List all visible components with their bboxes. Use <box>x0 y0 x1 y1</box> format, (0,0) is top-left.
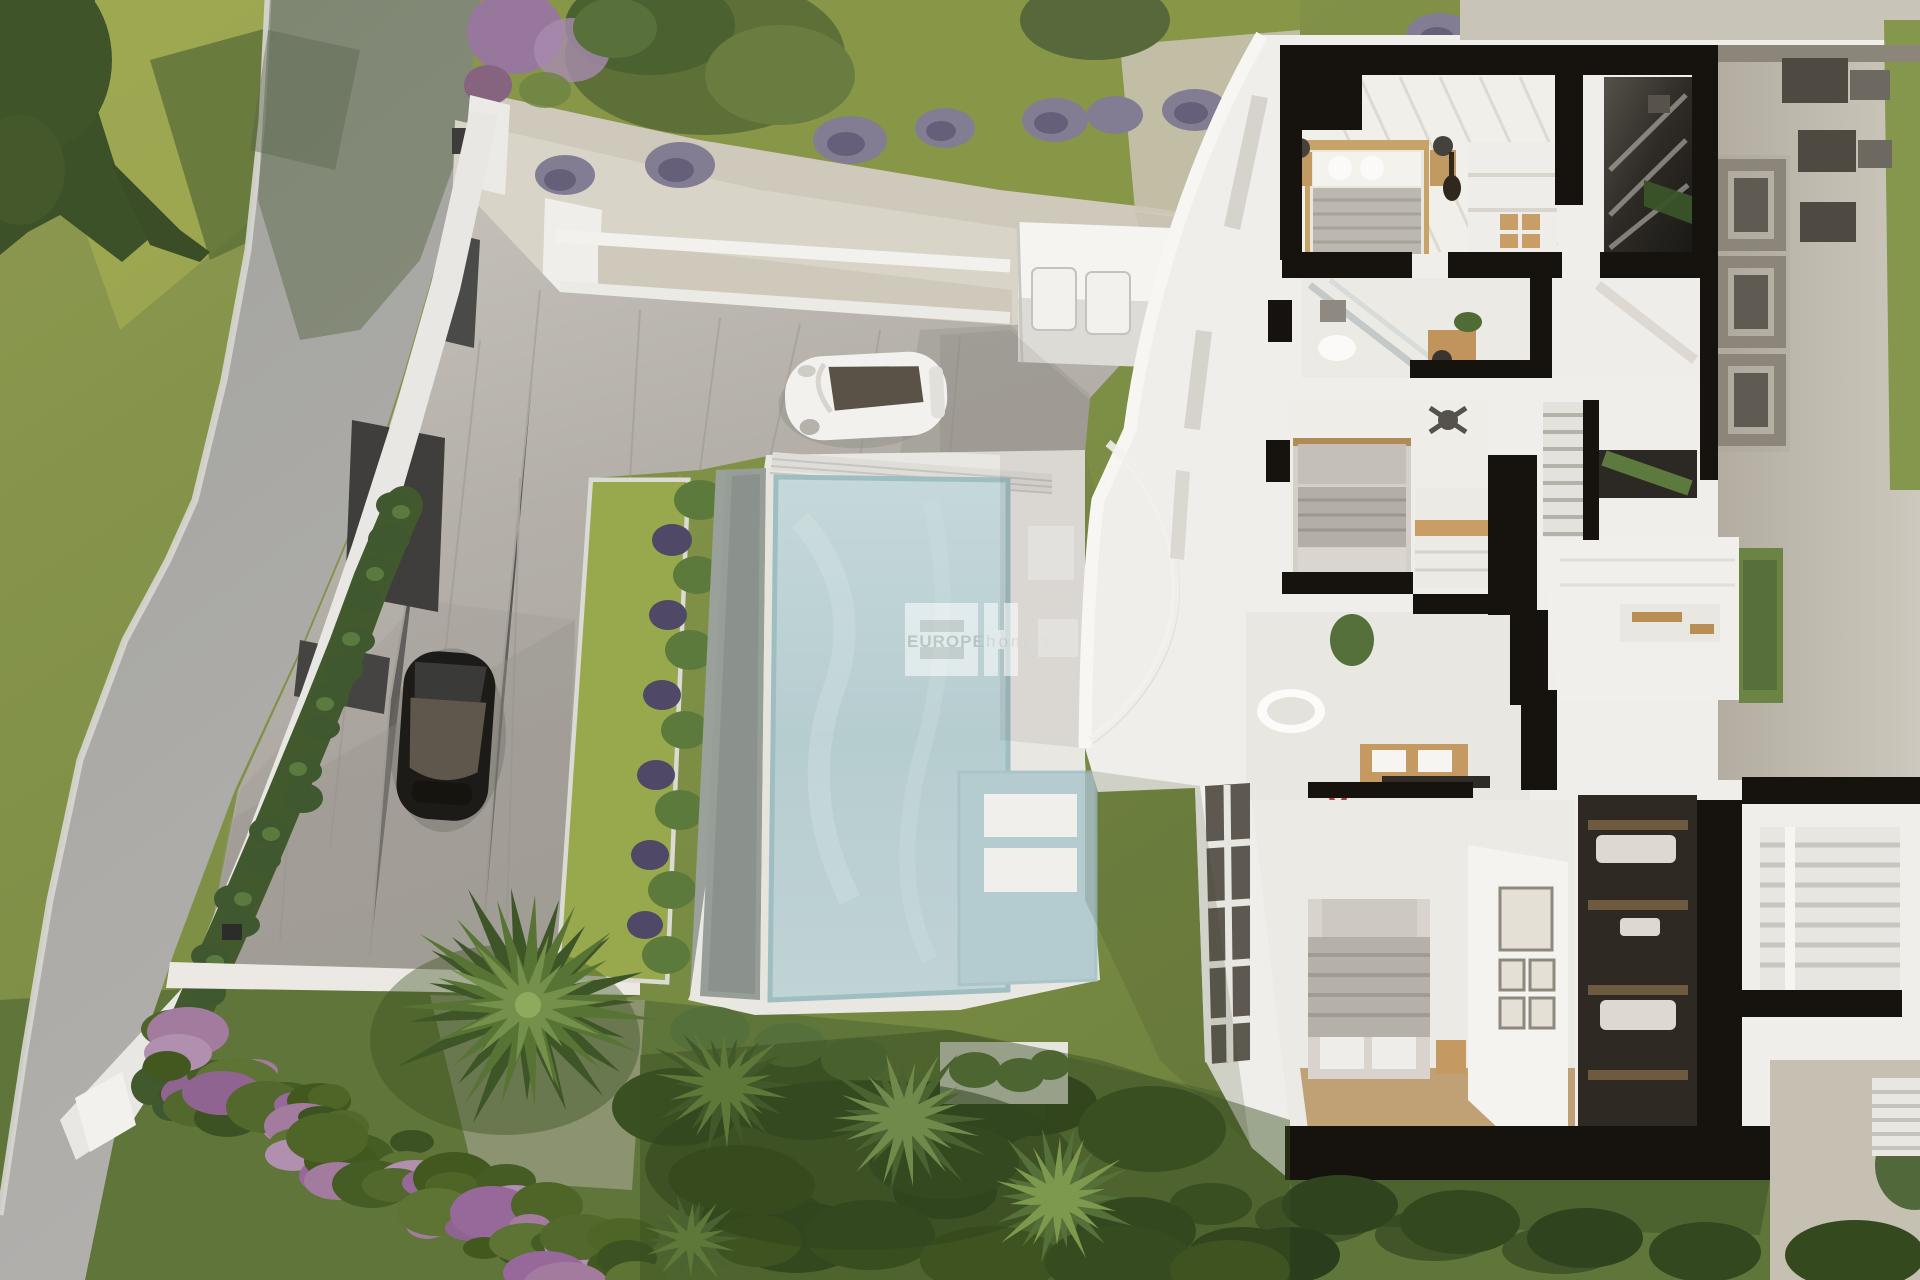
svg-text:EUROPE: EUROPE <box>907 632 985 651</box>
svg-text:homes: homes <box>986 632 1052 651</box>
